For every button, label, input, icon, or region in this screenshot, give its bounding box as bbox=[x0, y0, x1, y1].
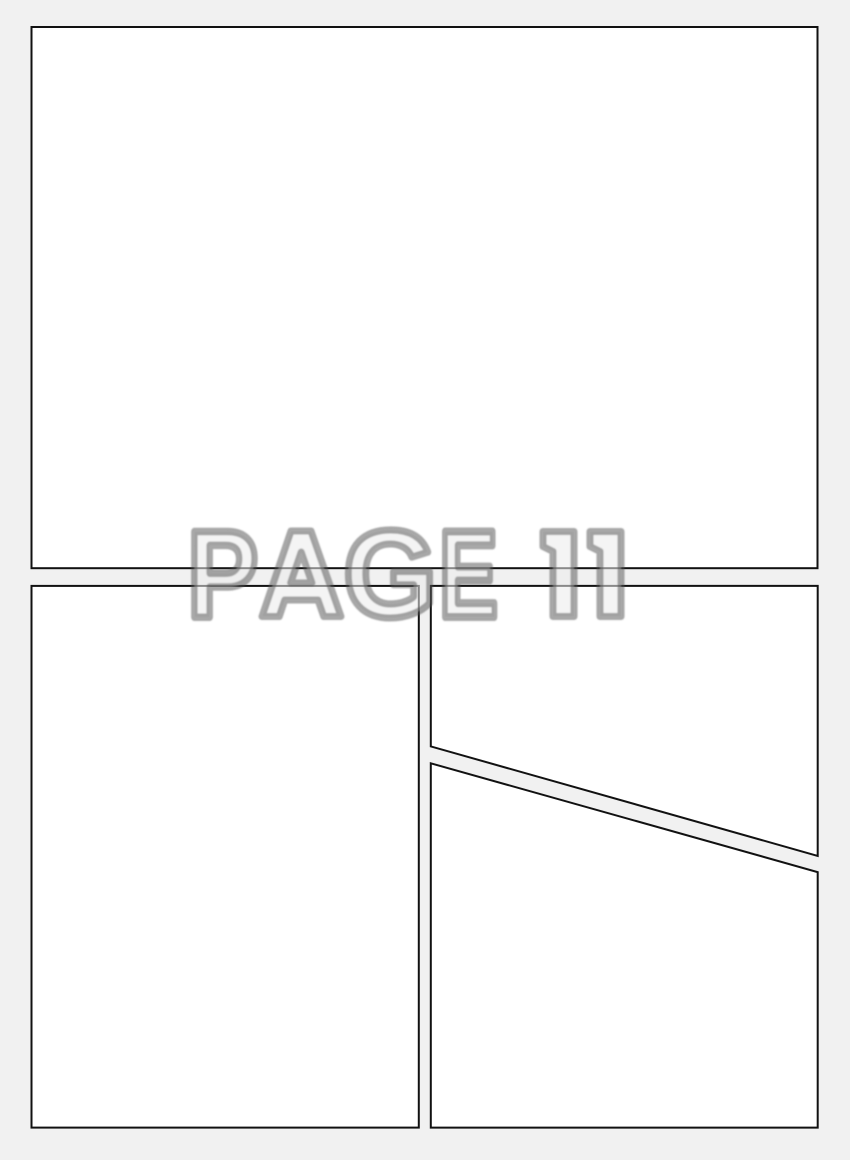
svg-text:P: P bbox=[187, 505, 258, 643]
svg-text:E: E bbox=[439, 505, 498, 643]
svg-text:G: G bbox=[343, 504, 437, 643]
